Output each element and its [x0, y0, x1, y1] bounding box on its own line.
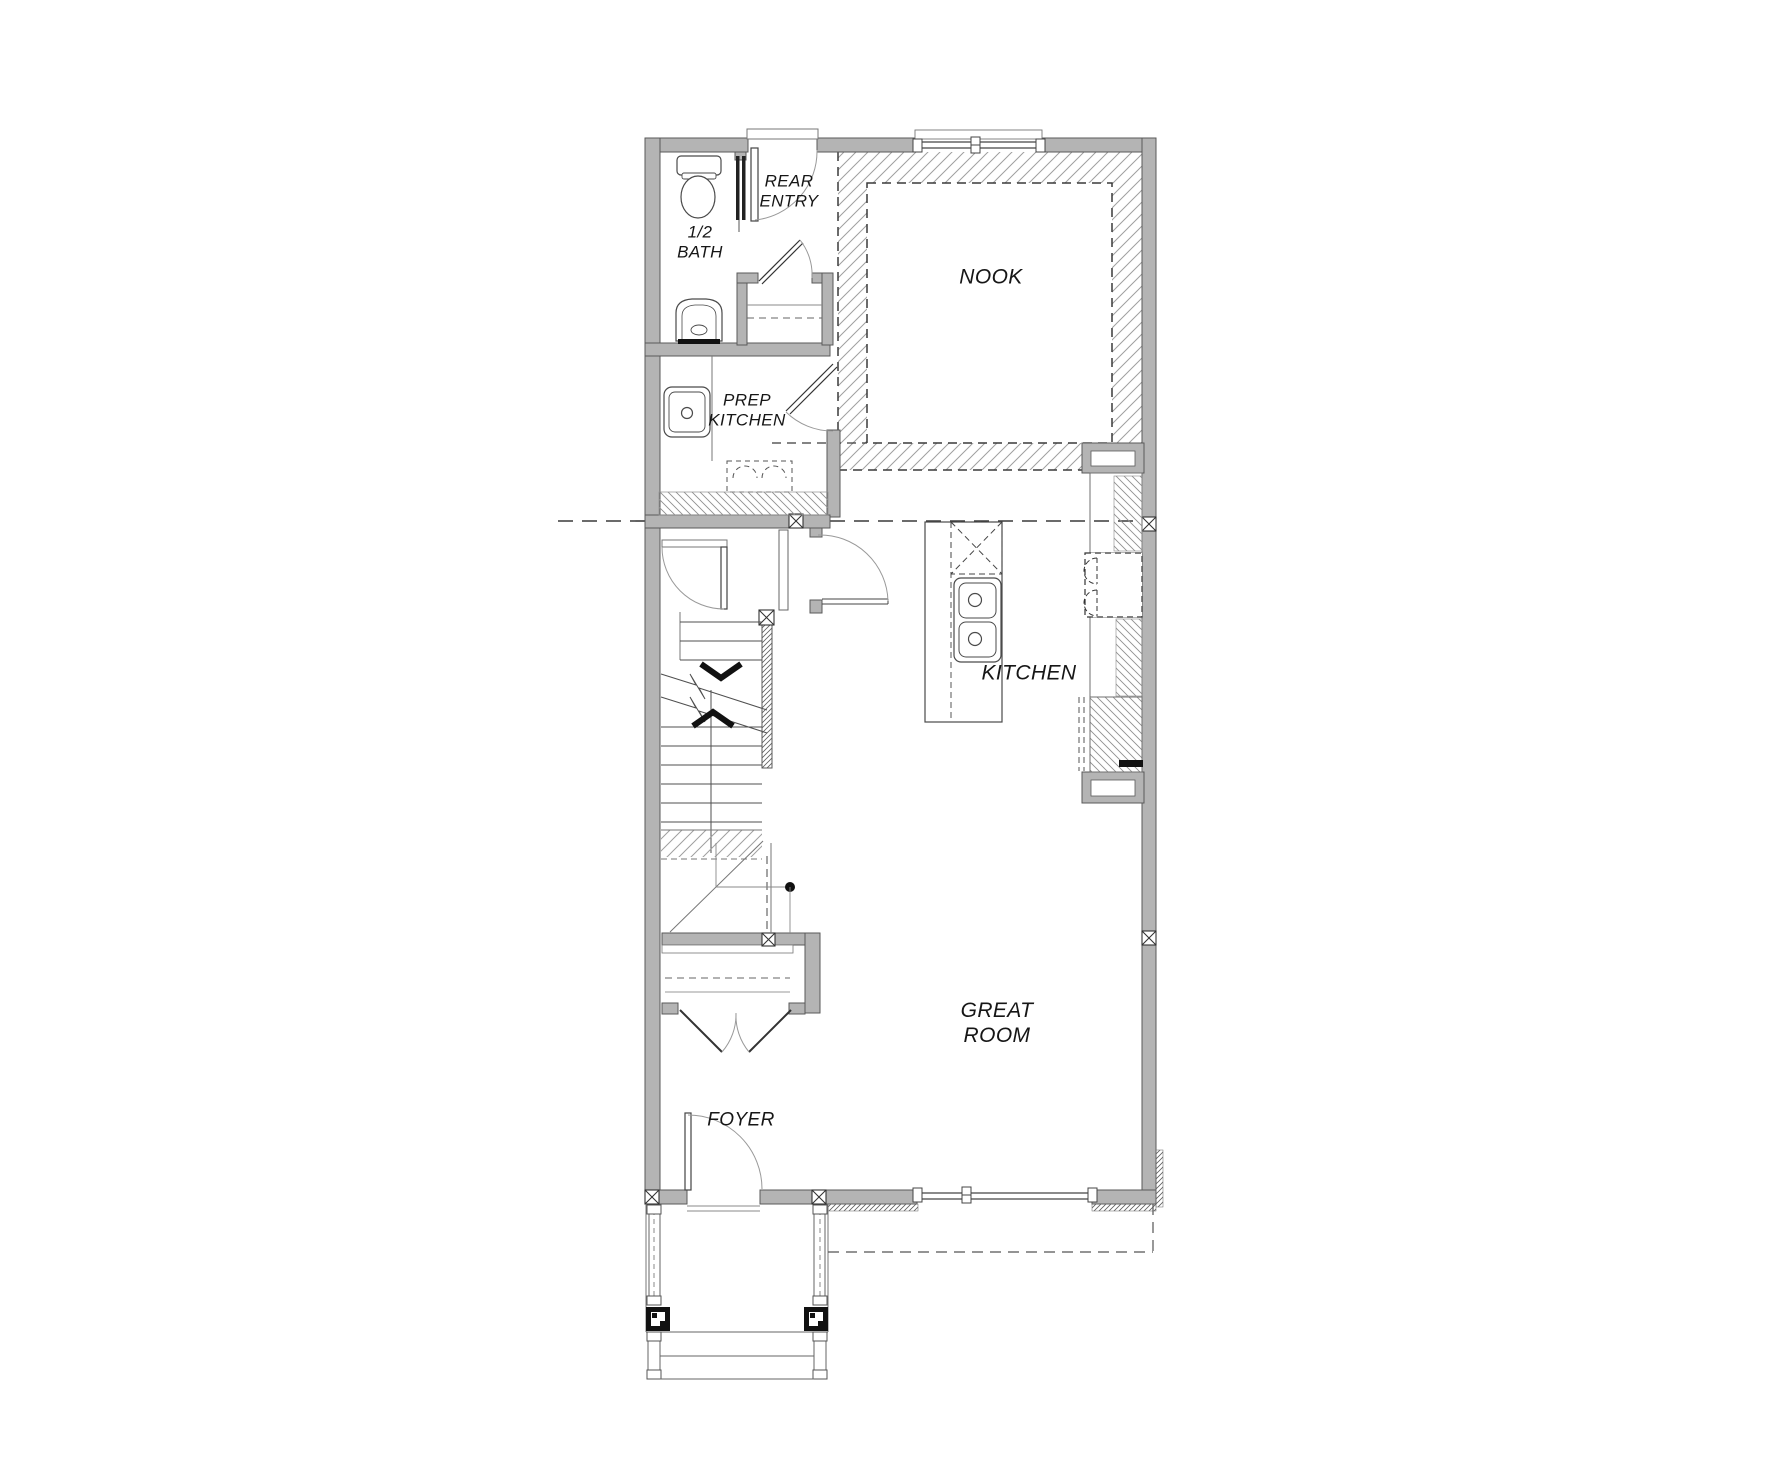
- porch: [646, 1204, 828, 1379]
- island-double-sink: [954, 578, 1001, 662]
- closet-double-doors: [680, 1010, 791, 1052]
- floor-plan-sheet: 1/2 BATH REAR ENTRY NOOK PREP KITCHEN KI…: [0, 0, 1780, 1480]
- hall-kitchen-door: [818, 535, 888, 604]
- room-label-kitchen: KITCHEN: [982, 660, 1077, 685]
- porch-railing-left: [647, 1205, 661, 1305]
- prep-counter-hatch: [659, 492, 828, 515]
- stair-direction-chevrons: [693, 664, 741, 726]
- undercounter-appliance: [727, 461, 792, 492]
- prep-kitchen-fixtures: [659, 356, 837, 515]
- porch-column-left: [646, 1307, 670, 1331]
- rear-window: [913, 130, 1045, 153]
- room-label-prep-kitchen: PREP KITCHEN: [708, 391, 785, 432]
- stair-hall-wall: [779, 530, 788, 610]
- room-label-nook: NOOK: [959, 264, 1022, 289]
- window-niche-2: [1082, 772, 1144, 803]
- nook-platform-hatch: [838, 152, 1142, 470]
- toilet: [677, 156, 721, 218]
- room-label-foyer: FOYER: [707, 1110, 774, 1133]
- exterior-walls: [645, 138, 1156, 1204]
- pocket-door: [736, 156, 746, 232]
- range-cooktop: [1084, 553, 1142, 617]
- pedestal-sink: [676, 299, 722, 344]
- room-label-rear-entry: REAR ENTRY: [760, 172, 819, 213]
- front-window: [913, 1187, 1097, 1203]
- stair-door: [662, 540, 727, 609]
- floor-plan-drawing: [0, 0, 1780, 1480]
- room-label-great-room: GREAT ROOM: [961, 998, 1034, 1048]
- porch-steps: [646, 1332, 828, 1379]
- porch-column-right: [804, 1307, 828, 1331]
- stairs: [661, 612, 767, 853]
- prep-sink: [664, 387, 710, 437]
- prep-kitchen-door: [786, 364, 837, 431]
- window-niche-1: [1082, 443, 1144, 473]
- room-label-half-bath: 1/2 BATH: [677, 223, 723, 264]
- interior-walls: [645, 152, 840, 1014]
- porch-railing-right: [813, 1205, 827, 1305]
- kitchen-counters: [1079, 473, 1143, 772]
